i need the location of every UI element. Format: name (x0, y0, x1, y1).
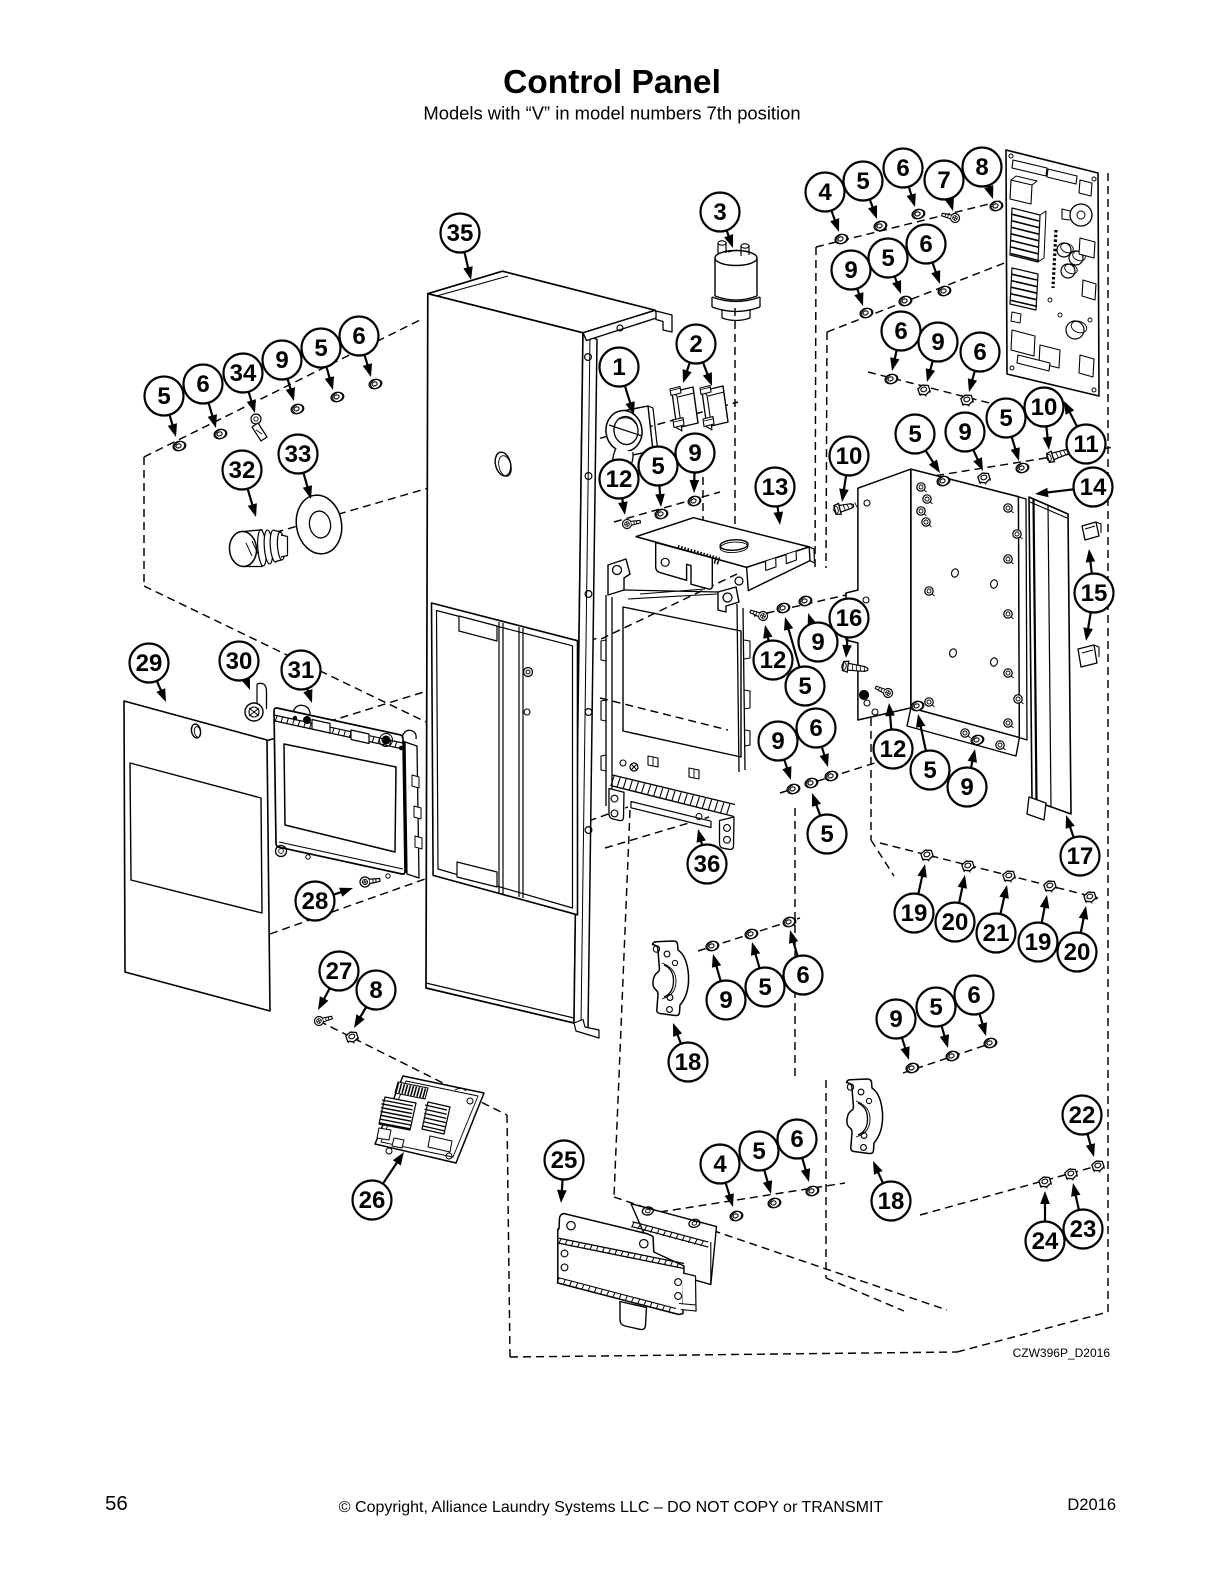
svg-text:9: 9 (811, 629, 824, 656)
svg-text:24: 24 (1032, 1228, 1059, 1255)
svg-text:15: 15 (1081, 580, 1108, 607)
svg-text:16: 16 (836, 605, 863, 632)
svg-text:12: 12 (606, 466, 633, 493)
svg-text:18: 18 (675, 1049, 702, 1076)
svg-text:12: 12 (760, 647, 787, 674)
svg-text:18: 18 (878, 1188, 905, 1215)
svg-text:5: 5 (929, 994, 942, 1021)
svg-text:13: 13 (762, 474, 789, 501)
svg-text:20: 20 (942, 909, 969, 936)
svg-text:4: 4 (713, 1151, 727, 1178)
svg-text:21: 21 (983, 920, 1010, 947)
svg-text:25: 25 (551, 1147, 578, 1174)
svg-text:Models with “V” in model numbe: Models with “V” in model numbers 7th pos… (423, 103, 800, 124)
svg-text:D2016: D2016 (1067, 1496, 1116, 1514)
svg-text:5: 5 (881, 245, 894, 272)
svg-text:1: 1 (612, 354, 625, 381)
svg-text:9: 9 (844, 257, 857, 284)
svg-text:8: 8 (975, 154, 988, 181)
svg-text:6: 6 (196, 371, 209, 398)
svg-text:6: 6 (967, 982, 980, 1009)
svg-text:23: 23 (1070, 1216, 1097, 1243)
svg-text:5: 5 (798, 673, 811, 700)
svg-text:32: 32 (229, 457, 256, 484)
svg-text:CZW396P_D2016: CZW396P_D2016 (1013, 1346, 1111, 1360)
svg-text:2: 2 (689, 331, 702, 358)
svg-text:28: 28 (302, 888, 329, 915)
svg-text:5: 5 (820, 821, 833, 848)
svg-text:5: 5 (758, 974, 771, 1001)
svg-text:6: 6 (809, 715, 822, 742)
svg-text:19: 19 (901, 900, 928, 927)
svg-text:8: 8 (369, 977, 382, 1004)
svg-text:31: 31 (288, 657, 315, 684)
svg-text:5: 5 (856, 168, 869, 195)
svg-text:5: 5 (651, 453, 664, 480)
svg-text:20: 20 (1064, 939, 1091, 966)
svg-text:9: 9 (719, 987, 732, 1014)
svg-text:19: 19 (1025, 929, 1052, 956)
svg-text:6: 6 (796, 962, 809, 989)
svg-text:9: 9 (889, 1006, 902, 1033)
svg-text:6: 6 (894, 318, 907, 345)
svg-text:33: 33 (285, 441, 312, 468)
svg-text:30: 30 (226, 648, 253, 675)
svg-text:9: 9 (960, 774, 973, 801)
svg-text:4: 4 (818, 179, 832, 206)
svg-text:35: 35 (447, 220, 474, 247)
svg-text:9: 9 (958, 419, 971, 446)
svg-text:9: 9 (688, 440, 701, 467)
svg-text:9: 9 (931, 329, 944, 356)
svg-text:9: 9 (275, 347, 288, 374)
svg-text:6: 6 (919, 231, 932, 258)
svg-text:34: 34 (230, 360, 257, 387)
svg-text:14: 14 (1080, 474, 1107, 501)
svg-text:10: 10 (836, 443, 863, 470)
svg-text:9: 9 (771, 728, 784, 755)
svg-text:26: 26 (359, 1187, 386, 1214)
svg-text:© Copyright, Alliance Laundry: © Copyright, Alliance Laundry Systems LL… (339, 1499, 884, 1516)
svg-text:5: 5 (314, 335, 327, 362)
svg-text:11: 11 (1073, 431, 1098, 458)
svg-text:27: 27 (326, 958, 353, 985)
svg-text:6: 6 (973, 339, 986, 366)
svg-text:7: 7 (937, 167, 950, 194)
svg-text:22: 22 (1069, 1102, 1096, 1129)
svg-text:10: 10 (1031, 394, 1058, 421)
svg-text:5: 5 (157, 383, 170, 410)
svg-text:5: 5 (908, 421, 921, 448)
svg-text:Control Panel: Control Panel (503, 64, 721, 101)
svg-text:17: 17 (1067, 843, 1094, 870)
svg-text:6: 6 (790, 1126, 803, 1153)
svg-text:12: 12 (880, 736, 907, 763)
svg-text:36: 36 (694, 851, 721, 878)
svg-text:3: 3 (713, 199, 726, 226)
svg-text:5: 5 (999, 405, 1012, 432)
svg-text:6: 6 (352, 323, 365, 350)
svg-text:56: 56 (105, 1492, 128, 1515)
svg-text:6: 6 (896, 155, 909, 182)
svg-text:5: 5 (923, 757, 936, 784)
svg-text:29: 29 (136, 650, 163, 677)
svg-text:5: 5 (752, 1138, 765, 1165)
